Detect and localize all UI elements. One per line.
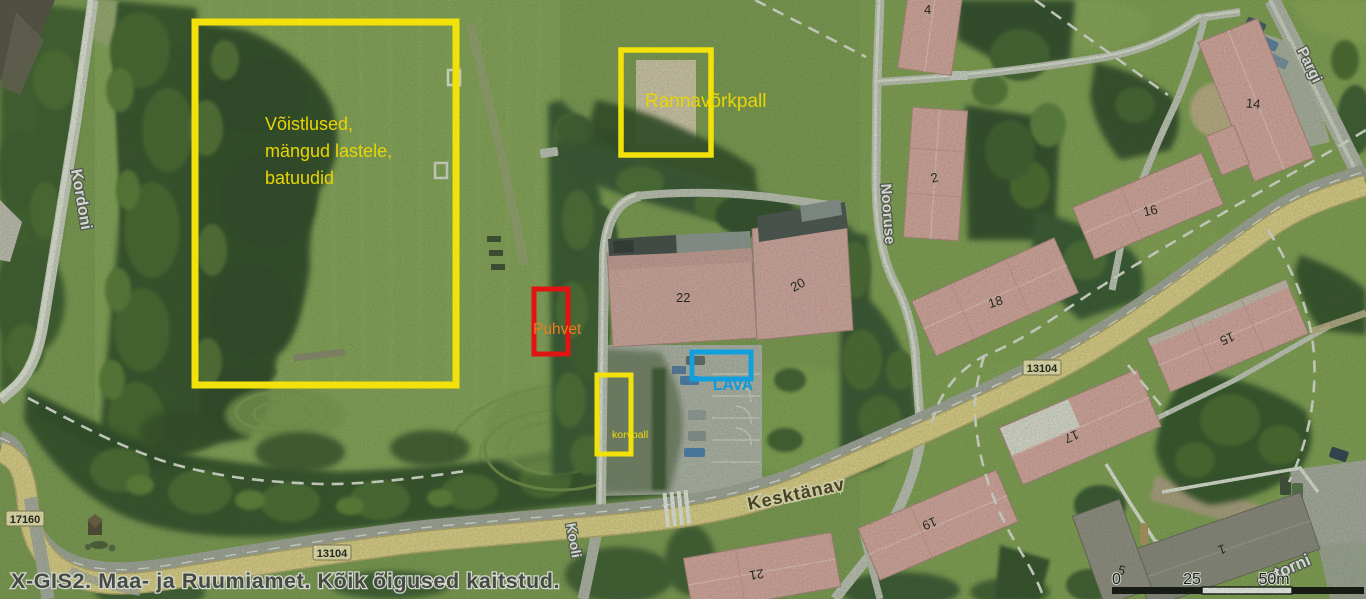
- svg-text:Puhvet: Puhvet: [533, 321, 582, 338]
- svg-text:mängud lastele,: mängud lastele,: [265, 141, 392, 161]
- svg-text:LAVA: LAVA: [713, 377, 753, 394]
- svg-text:korvpall: korvpall: [612, 429, 648, 441]
- svg-text:Rannavõrkpall: Rannavõrkpall: [645, 91, 766, 112]
- svg-text:batuudid: batuudid: [265, 168, 334, 188]
- svg-text:Võistlused,: Võistlused,: [265, 114, 353, 134]
